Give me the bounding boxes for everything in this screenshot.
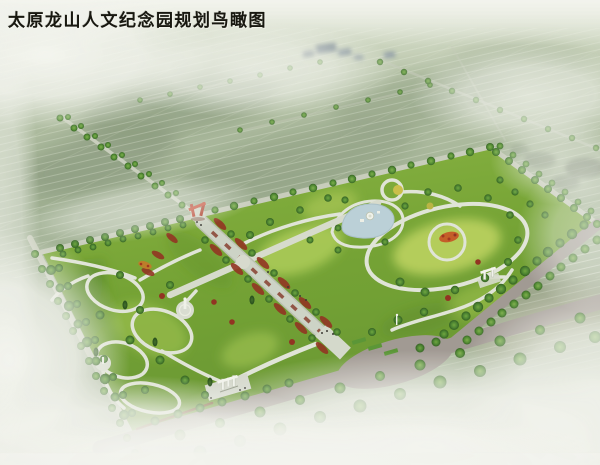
fog-overlay — [0, 0, 600, 465]
aerial-scene — [0, 0, 600, 465]
image-title: 太原龙山人文纪念园规划鸟瞰图 — [8, 6, 267, 31]
birdseye-rendering: 太原龙山人文纪念园规划鸟瞰图 — [0, 0, 600, 465]
